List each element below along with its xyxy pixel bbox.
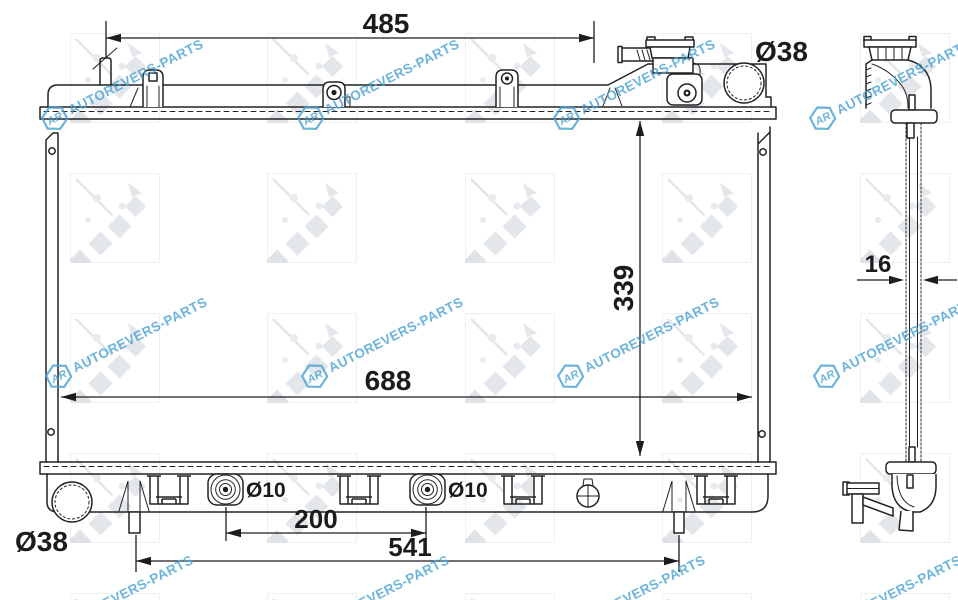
outlet-port-circle <box>52 482 92 522</box>
filler-neck-assembly <box>618 37 702 105</box>
side-core-column <box>906 123 921 462</box>
radiator-diagram-canvas: 485 Ø38 339 688 16 Ø10 Ø10 <box>0 0 958 600</box>
left-side-channel <box>46 133 58 462</box>
top-bracket-bolt-right <box>496 70 518 107</box>
side-outlet-pipe <box>899 511 913 531</box>
side-inlet-elbow <box>866 60 931 110</box>
mount-pin-left <box>119 481 149 533</box>
dimension-overall-width: 688 <box>61 365 752 401</box>
right-side-channel <box>758 127 770 462</box>
dimension-core-thickness: 16 <box>857 251 957 284</box>
dim-mount-span-label: 541 <box>388 532 431 562</box>
dimension-core-height: 339 <box>608 121 644 456</box>
dim-mount-pitch-label: 200 <box>294 504 337 534</box>
side-mount-brackets <box>843 482 893 523</box>
dim-inlet-diameter-label: Ø38 <box>755 36 808 67</box>
mount-pin-right <box>663 481 695 533</box>
dim-overall-width-label: 688 <box>365 365 412 396</box>
dim-mount-hole-left-label: Ø10 <box>246 479 286 502</box>
bolt-mount-left <box>208 474 243 505</box>
overflow-nipple <box>93 48 622 107</box>
bottom-header-plate <box>40 462 776 474</box>
dim-mount-hole-right-label: Ø10 <box>448 479 488 502</box>
dim-top-width-label: 485 <box>363 8 410 39</box>
dim-core-height-label: 339 <box>608 265 639 312</box>
radiator-technical-drawing: 485 Ø38 339 688 16 Ø10 Ø10 <box>0 0 958 600</box>
dimension-mount-span: 541 <box>136 532 679 572</box>
dimension-top-width: 485 <box>106 8 594 63</box>
side-bottom-flange <box>886 462 936 474</box>
side-top-flange <box>891 110 937 123</box>
side-bottom-tank <box>892 474 936 531</box>
dim-core-thickness-label: 16 <box>865 251 892 278</box>
drain-petcock <box>577 479 599 507</box>
inlet-port-circle <box>724 63 764 103</box>
side-filler-cap <box>864 37 916 61</box>
dim-outlet-diameter-label: Ø38 <box>15 526 68 557</box>
top-header-plate <box>40 107 776 119</box>
hat-bracket <box>694 476 738 504</box>
bolt-mount-right <box>410 474 445 505</box>
hat-bracket <box>501 476 545 504</box>
front-view <box>40 37 776 533</box>
top-bracket-square-hole <box>143 70 163 107</box>
hat-bracket <box>337 476 381 504</box>
hat-bracket <box>147 476 191 504</box>
